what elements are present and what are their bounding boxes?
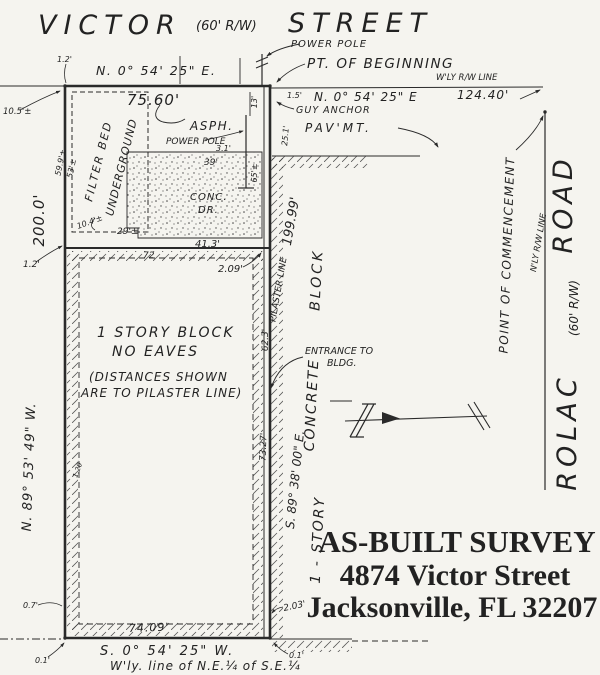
dim-2-09: 2.09' xyxy=(218,264,243,275)
pavement-label: PAV'MT. xyxy=(305,121,372,135)
dim-73-27: 73.27' xyxy=(259,433,270,462)
dim-62-3: 62.3' xyxy=(261,329,271,352)
power-pole-symbol-top xyxy=(256,54,268,86)
asphalt-label: ASPH. xyxy=(189,119,233,133)
quarter-line-label: W'ly. line of N.E.¼ of S.E.¼ xyxy=(110,659,301,673)
title-line-2: 4874 Victor Street xyxy=(340,559,571,592)
dim-200-0: 200.0' xyxy=(30,193,48,246)
dim-72: 72 xyxy=(143,251,155,261)
dim-1-5: 1.5' xyxy=(287,91,302,100)
dim-74-09: 74.09' xyxy=(129,621,170,635)
bottom-bearing-label: S. 0° 54' 25" W. xyxy=(100,644,234,659)
dim-0-1-right: 0.1' xyxy=(289,651,304,660)
dim-10-5: 10.5'± xyxy=(3,107,31,117)
dim-199-99: 199.99' xyxy=(280,196,303,247)
nly-rw-line-label: N'LY R/W LINE xyxy=(529,212,549,273)
dim-10-4: 10.4'± xyxy=(76,213,104,231)
point-of-beginning-label: PT. OF BEGINNING xyxy=(307,56,454,72)
title-block: AS-BUILT SURVEY 4874 Victor Street Jacks… xyxy=(307,524,598,624)
note-label-2: ARE TO PILASTER LINE) xyxy=(80,386,242,400)
power-pole-label: POWER POLE xyxy=(291,39,367,50)
wall-label-block: BLOCK xyxy=(307,248,326,311)
title-line-1: AS-BUILT SURVEY xyxy=(318,524,595,559)
dim-3-1: 3.1' xyxy=(216,144,231,153)
dim-53: 53'± xyxy=(65,158,78,179)
top-bearing-label: N. 0° 54' 25" E. xyxy=(96,63,216,78)
victor-street-rw: (60' R/W) xyxy=(196,19,257,34)
conc-drive-label-1: CONC. xyxy=(190,192,228,203)
building-label-1: 1 STORY BLOCK xyxy=(97,325,235,341)
dim-39: 39' xyxy=(204,158,218,168)
note-label-1: (DISTANCES SHOWN xyxy=(89,370,228,384)
wall-label-concrete: CONCRETE xyxy=(302,358,323,452)
guy-anchor-label: GUY ANCHOR xyxy=(296,105,371,116)
left-bearing-label: N. 89° 53' 49" W. xyxy=(20,402,39,531)
rolac-road-type: ROAD xyxy=(548,154,579,253)
entrance-label-1: ENTRANCE TO xyxy=(305,346,374,357)
victor-street-type: STREET xyxy=(288,8,433,39)
dim-41-3: 41.3' xyxy=(195,239,220,250)
title-line-3: Jacksonville, FL 32207 xyxy=(307,591,598,624)
dim-75-60: 75.60' xyxy=(127,91,180,109)
survey-sheet: VICTOR (60' R/W) STREET ROLAC (60' R/W) … xyxy=(0,0,600,675)
entrance-label-2: BLDG. xyxy=(327,358,357,369)
dim-1-2-top: 1.2' xyxy=(57,55,72,64)
dim-25-1: 25.1' xyxy=(280,125,291,146)
north-arrow xyxy=(330,401,490,437)
dim-13: 13' xyxy=(250,96,259,108)
victor-street-name: VICTOR xyxy=(38,10,182,41)
rolac-road-name: ROLAC xyxy=(552,373,583,490)
dim-124-40: 124.40' xyxy=(457,88,509,102)
dim-2-03: 2.03' xyxy=(283,599,307,613)
dim-65: 65'± xyxy=(250,163,259,182)
building-interior-dashed-line xyxy=(79,258,253,624)
point-of-commencement-label: POINT OF COMMENCEMENT xyxy=(497,156,518,354)
dim-1-2-left: 1.2' xyxy=(23,260,40,270)
dim-0-7: 0.7' xyxy=(23,601,38,610)
dim-0-1-left: 0.1' xyxy=(35,656,50,665)
survey-drawing: VICTOR (60' R/W) STREET ROLAC (60' R/W) … xyxy=(0,0,600,675)
building-label-2: NO EAVES xyxy=(112,344,199,360)
top-right-bearing-label: N. 0° 54' 25" E xyxy=(314,90,418,104)
wly-rw-line-label: W'LY R/W LINE xyxy=(436,73,498,83)
rolac-road-rw: (60' R/W) xyxy=(567,280,581,336)
conc-drive-label-2: DR. xyxy=(198,205,219,216)
dim-29: 29'± xyxy=(117,227,138,237)
